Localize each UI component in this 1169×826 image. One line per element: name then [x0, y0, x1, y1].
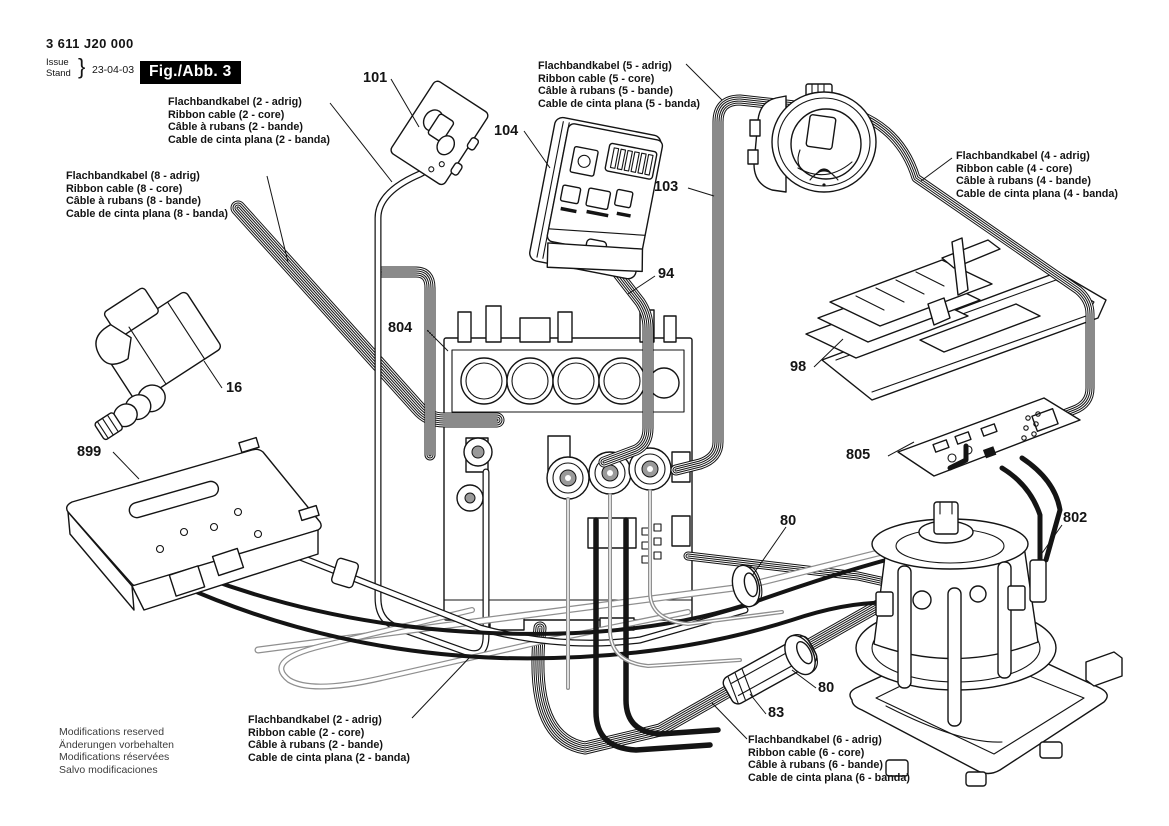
cable-label-right-4core: Flachbandkabel (4 - adrig) Ribbon cable … — [956, 150, 1118, 200]
leader-16 — [204, 361, 222, 388]
callout-802: 802 — [1063, 510, 1087, 526]
label-line: Câble à rubans (6 - bande) — [748, 759, 910, 772]
label-line: Flachbandkabel (2 - adrig) — [248, 714, 410, 727]
figure-label: Fig./Abb. 3 — [140, 61, 241, 84]
label-line: Cable de cinta plana (8 - banda) — [66, 208, 228, 221]
leader-104 — [524, 131, 550, 168]
callout-80-upper: 80 — [780, 513, 796, 529]
label-line: Flachbandkabel (5 - adrig) — [538, 60, 700, 73]
label-line: Câble à rubans (8 - bande) — [66, 195, 228, 208]
label-line: Flachbandkabel (6 - adrig) — [748, 734, 910, 747]
label-line: Ribbon cable (2 - core) — [248, 727, 410, 740]
callout-94: 94 — [658, 266, 674, 282]
cable-label-bottom-2core: Flachbandkabel (2 - adrig) Ribbon cable … — [248, 714, 410, 764]
callout-98: 98 — [790, 359, 806, 375]
cable-clip — [331, 557, 360, 588]
part-number: 3 611 J20 000 — [46, 36, 134, 51]
label-line: Flachbandkabel (4 - adrig) — [956, 150, 1118, 163]
label-line: Cable de cinta plana (5 - banda) — [538, 98, 700, 111]
label-line: Flachbandkabel (2 - adrig) — [168, 96, 330, 109]
footer-line: Änderungen vorbehalten — [59, 739, 174, 752]
ribbon-cable-branch — [382, 272, 430, 455]
callout-804: 804 — [388, 320, 412, 336]
component-switch-plate-101 — [389, 79, 495, 189]
issue-date: 23-04-03 — [92, 64, 134, 76]
component-mounting-plate-899 — [67, 438, 321, 610]
leader-899 — [113, 452, 139, 479]
label-line: Câble à rubans (5 - bande) — [538, 85, 700, 98]
label-line: Câble à rubans (4 - bande) — [956, 175, 1118, 188]
leader-103 — [688, 188, 714, 196]
label-line: Cable de cinta plana (2 - banda) — [248, 752, 410, 765]
callout-899: 899 — [77, 444, 101, 460]
issue-brace: } — [78, 54, 85, 80]
label-line: Flachbandkabel (8 - adrig) — [66, 170, 228, 183]
leader-83 — [750, 694, 766, 714]
label-line: Cable de cinta plana (2 - banda) — [168, 134, 330, 147]
stand-label: Stand — [46, 69, 71, 80]
label-line: Câble à rubans (2 - bande) — [168, 121, 330, 134]
cable-label-top-5core: Flachbandkabel (5 - adrig) Ribbon cable … — [538, 60, 700, 110]
label-line: Ribbon cable (5 - core) — [538, 73, 700, 86]
callout-80-lower: 80 — [818, 680, 834, 696]
callout-83: 83 — [768, 705, 784, 721]
leader-label-6-bottom — [712, 703, 747, 739]
callout-104: 104 — [494, 123, 518, 139]
leader-label-2-top — [330, 103, 392, 182]
callout-101: 101 — [363, 70, 387, 86]
footer-line: Modifications réservées — [59, 751, 174, 764]
label-line: Ribbon cable (8 - core) — [66, 183, 228, 196]
issue-stand-label: Issue Stand — [46, 58, 71, 79]
label-line: Ribbon cable (2 - core) — [168, 109, 330, 122]
issue-label: Issue — [46, 58, 71, 69]
component-control-panel-104 — [528, 116, 669, 285]
label-line: Cable de cinta plana (4 - banda) — [956, 188, 1118, 201]
leader-label-4-right — [921, 158, 952, 181]
label-line: Ribbon cable (4 - core) — [956, 163, 1118, 176]
footer-line: Salvo modificaciones — [59, 764, 174, 777]
exploded-wiring-diagram-page: 3 611 J20 000 Issue Stand } 23-04-03 Fig… — [0, 0, 1169, 826]
cable-label-top-2core: Flachbandkabel (2 - adrig) Ribbon cable … — [168, 96, 330, 146]
label-line: Ribbon cable (6 - core) — [748, 747, 910, 760]
callout-805: 805 — [846, 447, 870, 463]
callout-103: 103 — [654, 179, 678, 195]
component-small-pcb-805 — [898, 398, 1080, 476]
callout-16: 16 — [226, 380, 242, 396]
leader-101 — [391, 79, 419, 127]
modifications-notice: Modifications reserved Änderungen vorbeh… — [59, 726, 174, 776]
cable-label-left-8core: Flachbandkabel (8 - adrig) Ribbon cable … — [66, 170, 228, 220]
cable-label-bottom-6core: Flachbandkabel (6 - adrig) Ribbon cable … — [748, 734, 910, 784]
component-switch-16 — [46, 269, 231, 443]
label-line: Cable de cinta plana (6 - banda) — [748, 772, 910, 785]
label-line: Câble à rubans (2 - bande) — [248, 739, 410, 752]
footer-line: Modifications reserved — [59, 726, 174, 739]
